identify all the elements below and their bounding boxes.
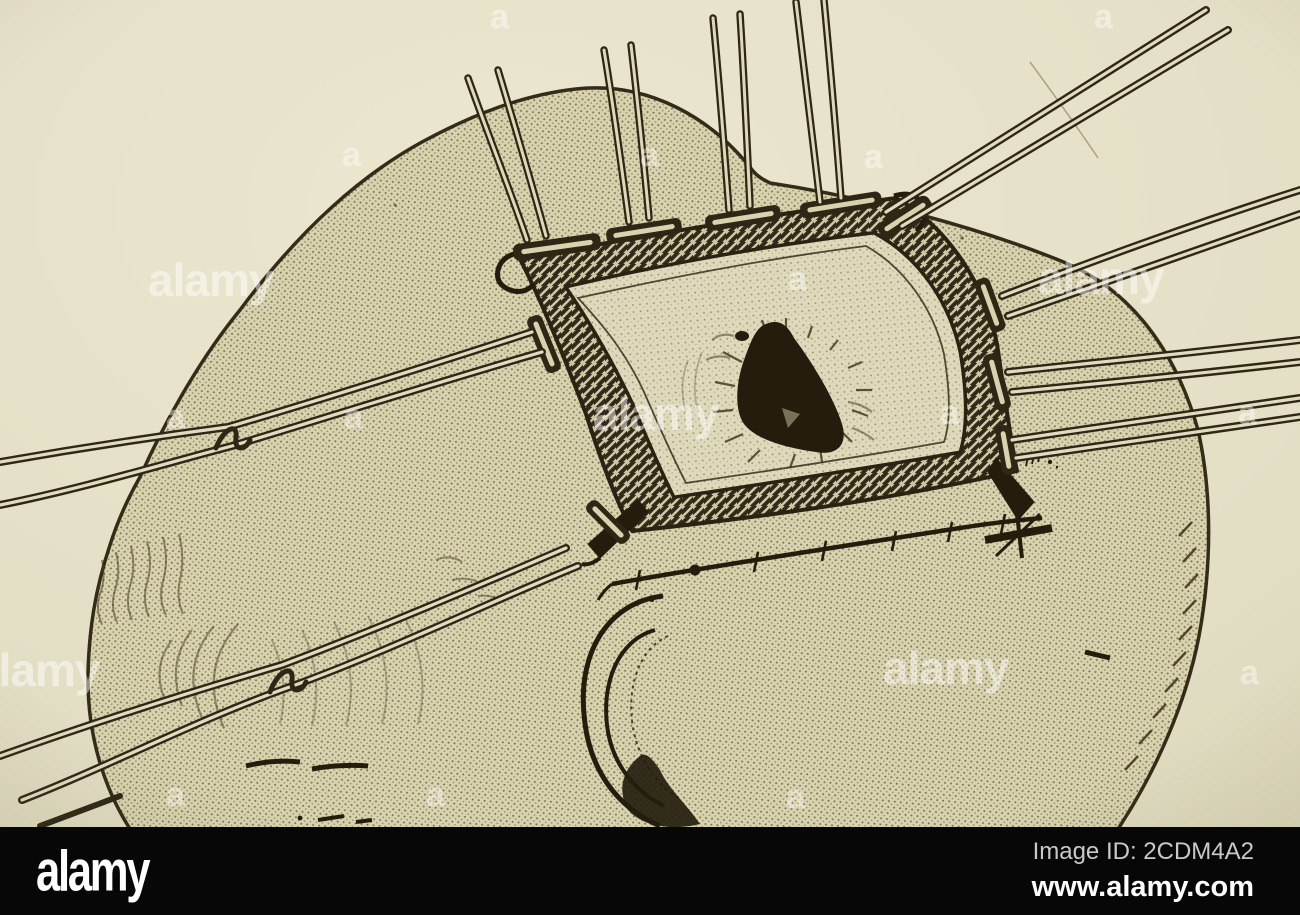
watermark-letter: a	[342, 136, 362, 174]
watermark-word: alamy	[593, 388, 720, 440]
alamy-url-text: www.alamy.com	[1032, 871, 1254, 904]
watermark-letter: a	[1240, 654, 1260, 692]
watermark-word: alamy	[148, 254, 275, 306]
watermark-letter: a	[786, 778, 806, 816]
stock-photo-page: alamy alamy alamy alamy alamy a a a a a …	[0, 0, 1300, 915]
watermark-letter: a	[490, 0, 510, 36]
watermark-letter: a	[166, 398, 186, 436]
watermark-letter: a	[864, 138, 884, 176]
surgical-illustration: alamy alamy alamy alamy alamy a a a a a …	[0, 0, 1300, 827]
watermark-letter: a	[166, 776, 186, 814]
image-credit-block: Image ID: 2CDM4A2 www.alamy.com	[1032, 838, 1254, 904]
watermark-letter: a	[640, 136, 660, 174]
watermark-letter: a	[940, 394, 960, 432]
alamy-footer-bar: alamy Image ID: 2CDM4A2 www.alamy.com	[0, 827, 1300, 915]
watermark-word: alamy	[0, 644, 101, 696]
watermark-letter: a	[1238, 394, 1258, 432]
watermark-letter: a	[1094, 0, 1114, 36]
watermark-letter: a	[426, 776, 446, 814]
watermark-word: alamy	[883, 642, 1010, 694]
alamy-logo: alamy	[36, 842, 148, 899]
watermark-letter: a	[788, 260, 808, 298]
watermark-word: alamy	[1038, 252, 1165, 304]
watermark-letter: a	[344, 398, 364, 436]
image-id-text: Image ID: 2CDM4A2	[1032, 838, 1254, 866]
